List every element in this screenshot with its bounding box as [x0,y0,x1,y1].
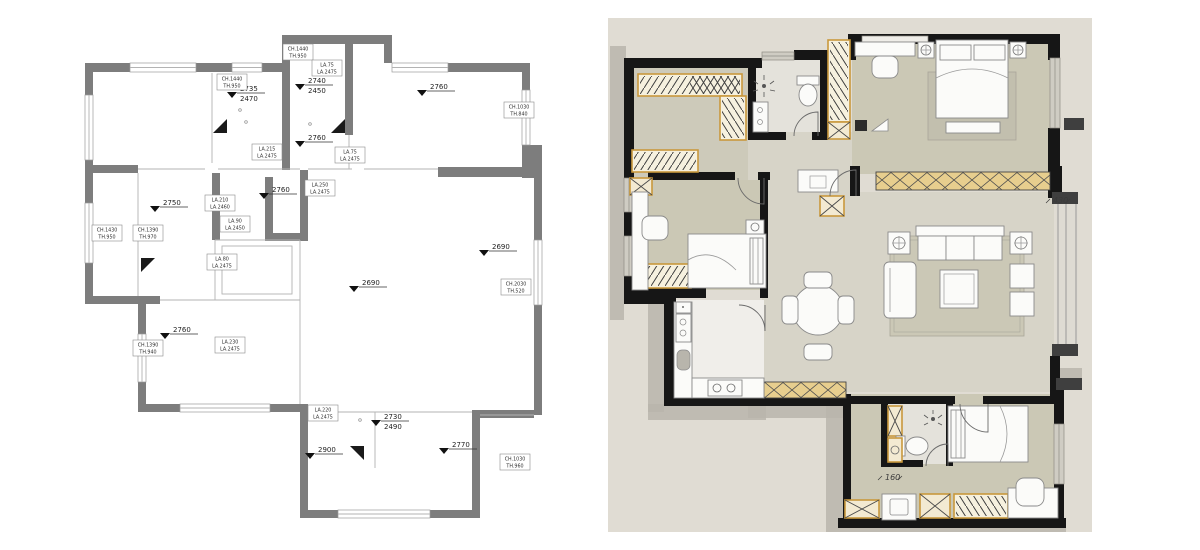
entry-wardrobe-top [638,74,742,96]
svg-text:CH.1430: CH.1430 [97,228,118,234]
svg-text:2490: 2490 [384,423,402,431]
svg-text:TH.950: TH.950 [97,235,115,241]
svg-text:LA.230: LA.230 [222,340,239,346]
bathroom1-toilet [797,76,819,106]
svg-text:LA.2475: LA.2475 [313,415,333,421]
svg-text:LA.75: LA.75 [343,150,357,156]
svg-text:CH.1440: CH.1440 [222,77,243,83]
kitchen-sink [676,314,691,342]
svg-text:CH.2030: CH.2030 [506,282,527,288]
hall-closet-column [828,40,850,122]
svg-text:CH.1390: CH.1390 [138,343,159,349]
floor-plan-comparison: 2735247027402450276027602760275026902690… [0,0,1200,550]
entry-wardrobe-lower [632,150,698,172]
master-window-seat [876,172,1050,190]
laundry-x-cabinet-left [845,500,879,518]
side-table-bottom [1010,292,1034,316]
floor-lamp-left [888,232,910,254]
svg-text:2770: 2770 [452,441,470,449]
svg-text:2760: 2760 [173,326,191,334]
tv-mark [855,120,867,131]
reference-label: LA.220LA.2475 [308,405,338,421]
svg-text:TH.960: TH.960 [505,464,523,470]
svg-text:2760: 2760 [430,83,448,91]
svg-text:CH.1390: CH.1390 [138,228,159,234]
svg-text:2690: 2690 [362,279,380,287]
svg-text:TH.840: TH.840 [509,112,527,118]
svg-text:LA.250: LA.250 [312,183,329,189]
level-marker: 2690 [479,243,517,256]
svg-text:TH.940: TH.940 [138,350,156,356]
bedroom2-nightstand [746,220,764,234]
svg-text:CH.1440: CH.1440 [288,47,309,53]
svg-text:LA.2475: LA.2475 [257,154,277,160]
level-marker: 27302490 [371,413,409,431]
bathroom2-tall-cabinet [888,406,902,436]
svg-text:2450: 2450 [308,87,326,95]
svg-text:2690: 2690 [492,243,510,251]
left-walls [85,35,542,518]
side-table-top [1010,264,1034,288]
svg-text:TH.520: TH.520 [506,289,524,295]
svg-text:TH.950: TH.950 [288,54,306,60]
svg-text:LA.90: LA.90 [228,219,242,225]
level-marker: 2760 [160,326,198,339]
bathroom1-sink [753,102,768,132]
svg-text:LA.210: LA.210 [212,198,229,204]
bathroom2-sink [888,438,902,462]
reference-label: CH.1390TH.940 [133,340,163,356]
bedroom3-wardrobe [954,494,1008,518]
svg-text:LA.215: LA.215 [259,147,276,153]
level-marker: 2770 [439,441,477,454]
dining-table [793,285,843,335]
svg-text:LA.2475: LA.2475 [212,264,232,270]
washing-machine [882,494,916,520]
svg-text:LA.2475: LA.2475 [220,347,240,353]
laundry-x-cabinet-right [920,494,950,518]
svg-text:LA.2460: LA.2460 [210,205,230,211]
reference-label: CH.1030TH.960 [500,454,530,470]
level-marker: 27402450 [295,77,333,95]
closet-x-cabinet [828,122,850,139]
coffee-table [940,270,978,308]
svg-text:2740: 2740 [308,77,326,85]
master-nightstand-left [918,42,934,58]
svg-text:2900: 2900 [318,446,336,454]
hall-console [798,170,838,192]
level-marker: 2690 [349,279,387,292]
reference-label: LA.215LA.2475 [252,144,282,160]
svg-text:LA.220: LA.220 [315,408,332,414]
level-markers: 2735247027402450276027602760275026902690… [150,77,517,459]
reference-label: CH.1030TH.840 [504,102,534,118]
svg-text:2760: 2760 [272,186,290,194]
furnished-floor-plan: 430 160 [608,18,1092,532]
floor-plans-svg: 2735247027402450276027602760275026902690… [0,0,1200,550]
sofa [916,226,1004,260]
reference-label: LA.80LA.2475 [207,254,237,270]
reference-label: LA.90LA.2450 [220,216,250,232]
kitchen-appliance [677,350,690,370]
bay-window [1056,204,1078,344]
reference-label: CH.1390TH.970 [133,225,163,241]
reference-label: CH.1440TH.950 [283,44,313,60]
hall-x-cabinet [820,196,844,216]
stove [708,380,742,396]
bedroom2-bed [688,234,766,288]
reference-label: LA.75LA.2475 [312,60,342,76]
measured-floor-plan: 2735247027402450276027602760275026902690… [85,35,542,518]
svg-text:2750: 2750 [163,199,181,207]
dining-window-seat [764,382,846,398]
svg-text:TH.970: TH.970 [138,235,156,241]
living-jog-dimension: 430 [1053,196,1068,205]
kitchen-wall-cabinet [676,302,691,313]
svg-text:LA.2475: LA.2475 [340,157,360,163]
svg-text:LA.2475: LA.2475 [317,70,337,76]
level-marker: 2760 [259,186,297,199]
entry-wardrobe-side [720,96,746,140]
svg-text:2760: 2760 [308,134,326,142]
reference-label: LA.210LA.2460 [205,195,235,211]
svg-text:CH.1030: CH.1030 [505,457,526,463]
svg-text:LA.80: LA.80 [215,257,229,263]
svg-text:LA.2450: LA.2450 [225,226,245,232]
level-marker: 2760 [295,134,333,147]
reference-label: CH.1430TH.950 [92,225,122,241]
svg-text:2730: 2730 [384,413,402,421]
svg-text:LA.2475: LA.2475 [310,190,330,196]
master-nightstand-right [1010,42,1026,58]
chaise-lounge [884,262,916,318]
level-marker: 2760 [417,83,455,96]
level-marker: 2900 [305,446,343,459]
reference-label: CH.2030TH.520 [501,279,531,295]
reference-label: CH.1440TH.950 [217,74,247,90]
reference-label: LA.250LA.2475 [305,180,335,196]
svg-text:2470: 2470 [240,95,258,103]
reference-label: LA.230LA.2475 [215,337,245,353]
svg-text:LA.75: LA.75 [320,63,334,69]
reference-label: LA.75LA.2475 [335,147,365,163]
level-marker: 2750 [150,199,188,212]
svg-text:TH.950: TH.950 [222,84,240,90]
floor-lamp-right [1010,232,1032,254]
svg-text:CH.1030: CH.1030 [509,105,530,111]
bedroom3-niche-dimension: 160 [885,473,900,482]
